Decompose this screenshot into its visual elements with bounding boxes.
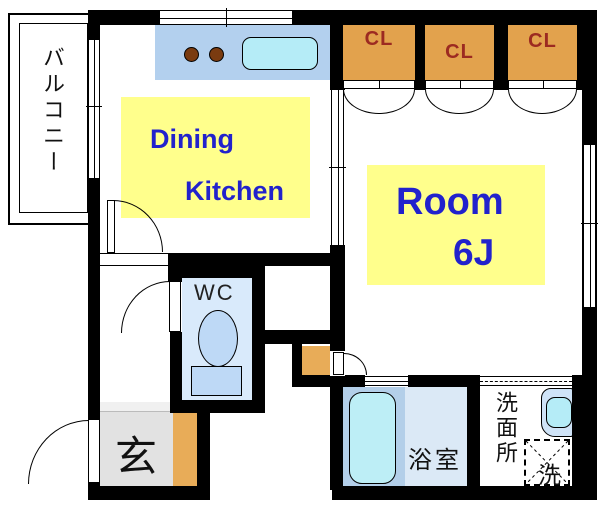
closet-2-door-arc <box>459 89 494 114</box>
closet-3-track <box>508 80 577 89</box>
wc-door-arc <box>121 281 170 333</box>
wc-label: WC <box>194 280 235 306</box>
stove-burner-right <box>209 47 224 62</box>
wall <box>577 23 583 90</box>
wall <box>467 387 480 487</box>
entrance-door-leaf <box>88 419 100 483</box>
wall <box>345 375 365 387</box>
kitchen-window <box>160 10 292 25</box>
room-door-leaf <box>333 352 344 375</box>
wall <box>252 330 333 344</box>
closet-2-label: CL <box>445 41 474 80</box>
wall <box>494 23 508 90</box>
closet-1-label: CL <box>365 28 394 80</box>
wall <box>88 178 100 420</box>
balcony-label: バルコニー <box>36 46 68 176</box>
room-door-arc <box>344 353 367 375</box>
bathroom-label: 浴室 <box>408 440 462 475</box>
wall <box>330 375 343 490</box>
entrance-step <box>173 412 197 487</box>
wall <box>168 266 182 282</box>
closet-1: CL <box>343 25 415 80</box>
entrance-label: 玄 <box>115 423 157 484</box>
closet-3-door-arc <box>508 89 542 114</box>
wall <box>170 400 265 413</box>
wall <box>170 332 182 402</box>
toilet-bowl <box>198 310 238 367</box>
closet-2-door-arc <box>425 89 459 114</box>
wall <box>88 483 100 500</box>
closet-1-door-arc <box>343 89 379 114</box>
room-size-label: 6J <box>453 232 494 274</box>
dining-label: Dining <box>150 124 234 155</box>
balcony-sliding-door <box>88 40 100 178</box>
washroom-sliding-door <box>480 376 572 386</box>
hall-step <box>302 346 333 375</box>
room-label: Room <box>396 181 504 224</box>
kitchen-label: Kitchen <box>185 176 284 207</box>
room-window <box>583 145 596 307</box>
wall <box>332 486 597 500</box>
wall <box>197 408 210 498</box>
stove-burner-left <box>184 47 199 62</box>
closet-1-door-arc <box>379 89 415 114</box>
kitchen-sink <box>242 37 318 70</box>
dk-door-gap <box>100 253 168 266</box>
wall <box>415 23 425 90</box>
closet-2-track <box>425 80 494 89</box>
vanity-bowl <box>546 397 572 428</box>
closet-3-label: CL <box>528 30 557 80</box>
wall <box>408 375 480 387</box>
closet-1-track <box>343 80 415 89</box>
closet-3-door-arc <box>542 89 577 114</box>
bathroom-sliding-door <box>365 376 408 386</box>
closet-2: CL <box>425 25 494 80</box>
wall <box>168 253 345 266</box>
washroom-label: 洗面所 <box>489 391 521 466</box>
floor-plan: バルコニー Dining Kitchen Room 6J WC 玄 浴室 洗面所… <box>0 0 600 518</box>
wall <box>88 486 210 500</box>
wall <box>572 387 582 487</box>
dk-room-sliding-door <box>331 90 344 245</box>
closet-3: CL <box>508 25 577 80</box>
wall <box>88 13 100 42</box>
entrance-door-arc <box>28 420 89 484</box>
wall <box>330 245 345 352</box>
wc-door-leaf <box>169 281 181 332</box>
toilet-tank <box>191 366 242 396</box>
laundry-label: 洗 <box>538 456 561 490</box>
bathtub <box>349 392 396 484</box>
wall <box>572 375 583 387</box>
